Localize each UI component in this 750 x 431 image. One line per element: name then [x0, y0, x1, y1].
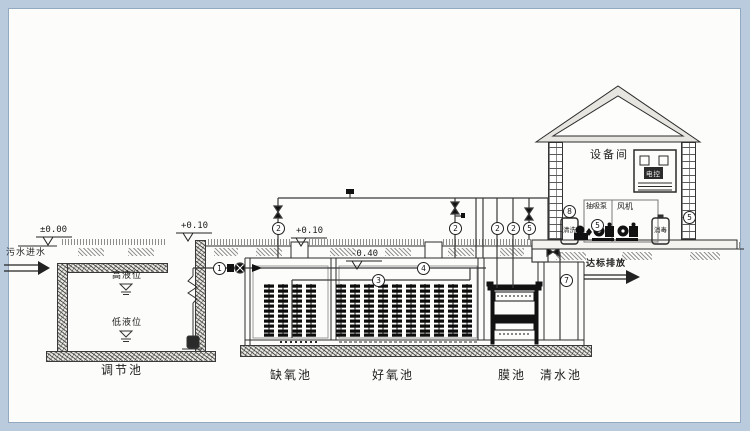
equipment-room-label: 设备间: [590, 149, 629, 161]
pipe-tag-5: 5: [591, 219, 604, 232]
elevation-water: -0.40: [351, 250, 378, 260]
blower-label: 风机: [617, 203, 633, 212]
inlet-arrow: [4, 261, 50, 275]
elevation-tank-wall: +0.10: [296, 227, 323, 237]
pipe-tag-5: 5: [523, 222, 536, 235]
disinfect-tank-label: 消毒: [654, 227, 667, 234]
high-level-label: 高液位: [112, 272, 142, 282]
pipe-tag-2: 2: [449, 222, 462, 235]
aerobic-tank-label: 好氧池: [350, 369, 436, 382]
pipe-tag-5: 5: [683, 211, 696, 224]
pipe-tag-1: 1: [213, 262, 226, 275]
biofilm-carriers: [265, 284, 472, 336]
clearwater-tank-label: 清水池: [536, 369, 586, 382]
membrane-tank-label: 膜池: [487, 369, 537, 382]
discharge-arrow: [584, 270, 640, 284]
membrane-module: [487, 282, 542, 344]
elevation-reg-wall: +0.10: [181, 222, 208, 232]
pipe-tag-3: 3: [372, 274, 385, 287]
discharge-label: 达标排放: [586, 260, 626, 270]
pipe-tag-4: 4: [417, 262, 430, 275]
electric-cabinet-label: 电控: [644, 167, 663, 179]
suction-pump-icon: [574, 226, 592, 241]
pipe-tag-2: 2: [272, 222, 285, 235]
elevation-markers: [36, 233, 382, 269]
low-level-label: 低液位: [112, 319, 142, 329]
pipe-tag-7: 7: [560, 274, 573, 287]
cleaning-tank-label: 清洗: [563, 227, 576, 234]
elevation-ground: ±0.00: [40, 226, 67, 236]
suction-pump-label: 抽吸泵: [586, 203, 607, 211]
pipe-tag-2: 2: [507, 222, 520, 235]
drawing-canvas: 污水进水 ±0.00 +0.10 +0.10 -0.40 高液位 低液位 调节池…: [0, 0, 750, 431]
pipe-tag-8: 8: [563, 205, 576, 218]
regulation-tank-label: 调节池: [66, 364, 178, 377]
anoxic-tank-label: 缺氧池: [248, 369, 334, 382]
inlet-label: 污水进水: [6, 249, 46, 259]
pipe-tag-2: 2: [491, 222, 504, 235]
